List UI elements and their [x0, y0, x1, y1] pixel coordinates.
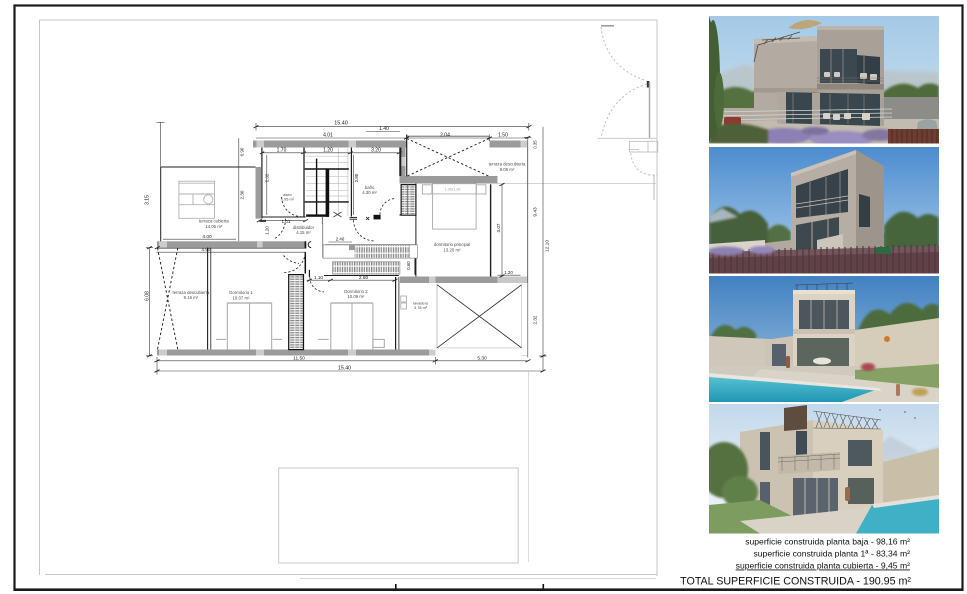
svg-text:2.04: 2.04 — [440, 133, 450, 139]
svg-text:1.35x1.90: 1.35x1.90 — [445, 187, 461, 191]
svg-text:terraza descubierta: terraza descubierta — [489, 162, 526, 167]
svg-text:3.78 m²: 3.78 m² — [414, 305, 428, 310]
svg-text:2.32: 2.32 — [532, 315, 537, 324]
svg-text:1.10: 1.10 — [314, 275, 323, 280]
svg-text:3.07: 3.07 — [496, 223, 501, 232]
svg-text:9.16 m²: 9.16 m² — [184, 295, 199, 300]
svg-text:2.30: 2.30 — [239, 190, 244, 199]
svg-text:4.15 m²: 4.15 m² — [296, 230, 311, 235]
svg-text:1.70: 1.70 — [277, 147, 287, 153]
svg-text:15.40: 15.40 — [334, 121, 348, 127]
svg-text:2.80: 2.80 — [354, 173, 359, 182]
svg-text:9.43: 9.43 — [532, 207, 538, 217]
svg-text:1.20: 1.20 — [264, 226, 269, 235]
svg-text:10.09 m²: 10.09 m² — [347, 294, 365, 299]
svg-text:5.30: 5.30 — [477, 356, 487, 362]
svg-text:6.08: 6.08 — [145, 291, 151, 301]
svg-text:3.15: 3.15 — [145, 195, 151, 205]
svg-text:4.90: 4.90 — [202, 247, 211, 252]
svg-text:4.00: 4.00 — [202, 234, 212, 240]
svg-text:14.05 m²: 14.05 m² — [205, 224, 223, 229]
svg-text:10.07 m²: 10.07 m² — [233, 295, 251, 300]
svg-text:2.46: 2.46 — [336, 237, 345, 242]
svg-text:superficie construida planta 1: superficie construida planta 1ª - 83,34 … — [753, 549, 910, 559]
svg-text:1.20: 1.20 — [504, 270, 513, 275]
svg-text:3.20: 3.20 — [371, 147, 381, 153]
svg-text:13.20 m²: 13.20 m² — [444, 247, 462, 252]
svg-text:4.01: 4.01 — [323, 133, 333, 139]
svg-text:4.30 m²: 4.30 m² — [362, 190, 377, 195]
svg-text:2.32: 2.32 — [264, 173, 269, 182]
svg-text:9.08 m²: 9.08 m² — [500, 167, 515, 172]
svg-text:15.40: 15.40 — [338, 365, 351, 371]
svg-text:TOTAL SUPERFICIE CONSTRUIDA -: TOTAL SUPERFICIE CONSTRUIDA - 190.95 m² — [680, 576, 911, 588]
svg-text:0.60: 0.60 — [406, 261, 411, 270]
svg-text:1.50: 1.50 — [498, 133, 508, 139]
svg-text:0.90: 0.90 — [239, 147, 244, 156]
svg-text:superficie construida planta c: superficie construida planta cubierta - … — [736, 561, 910, 571]
svg-text:dormitorio principal: dormitorio principal — [434, 242, 470, 247]
svg-text:2.60: 2.60 — [359, 275, 369, 281]
svg-text:1.01: 1.01 — [282, 219, 291, 224]
svg-text:terraza cubierta: terraza cubierta — [199, 219, 229, 224]
svg-text:11.50: 11.50 — [293, 356, 305, 362]
svg-text:1.40: 1.40 — [379, 126, 389, 132]
svg-text:superficie construida planta b: superficie construida planta baja - 98,1… — [745, 537, 910, 547]
svg-text:1.20: 1.20 — [323, 147, 333, 153]
svg-text:0.35: 0.35 — [532, 140, 537, 149]
svg-text:1.95 m²: 1.95 m² — [281, 197, 295, 202]
svg-text:12.10: 12.10 — [544, 240, 550, 252]
